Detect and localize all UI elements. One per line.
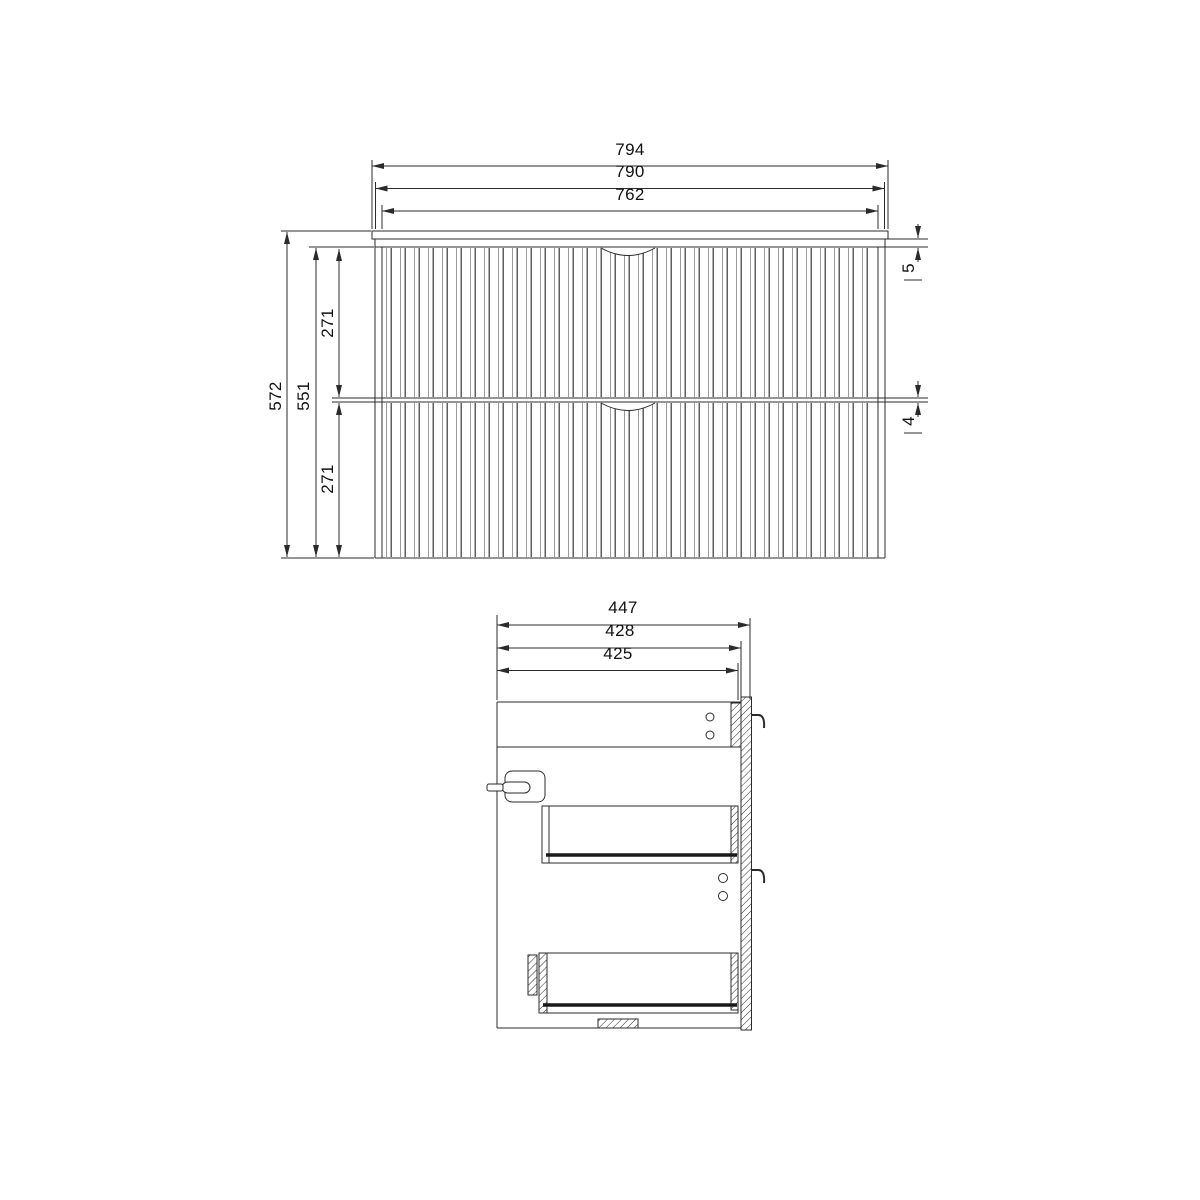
- front-dim-lower-drawer-label: 271: [318, 464, 338, 494]
- side-dim-carcass-depth-label: 428: [605, 621, 635, 641]
- side-bottom-rail-section: [598, 1019, 638, 1028]
- front-dim-drawer-width-label: 762: [615, 185, 645, 205]
- technical-drawing-canvas: 794 790 762 572 551 271 271 5 4 447 428 …: [0, 0, 1200, 1200]
- front-cabinet-body: [375, 239, 885, 558]
- side-wall-panel-section: [741, 697, 752, 1030]
- screw-hole-mid-1: [719, 874, 728, 883]
- side-dim-drawer-depth-label: 425: [603, 644, 633, 664]
- front-dim-overall-height-label: 572: [266, 381, 286, 411]
- screw-hole-mid-2: [719, 892, 728, 901]
- front-dim-overall-width-label: 794: [615, 140, 645, 160]
- front-view: [281, 160, 928, 558]
- front-dimensions-gaps: [885, 224, 928, 433]
- side-upper-drawer-box: [542, 806, 738, 863]
- wall-bracket-hook-top: [752, 715, 765, 728]
- side-dim-overall-depth-label: 447: [608, 598, 638, 618]
- side-view: [487, 615, 764, 1030]
- wall-bracket-hook-middle: [752, 870, 765, 883]
- side-lower-drawer-box: [528, 953, 738, 1013]
- drawing-linework: [0, 0, 1200, 1200]
- front-handle-recess-upper: [601, 248, 655, 256]
- front-dim-middle-gap-label: 4: [899, 416, 919, 426]
- front-dim-carcass-width-label: 790: [615, 162, 645, 182]
- side-top-rail-section: [731, 703, 741, 747]
- screw-hole-top-1: [706, 713, 714, 721]
- drawer-front-adjuster: [487, 771, 545, 802]
- front-dim-upper-drawer-label: 271: [318, 308, 338, 338]
- screw-hole-top-2: [706, 731, 714, 739]
- front-countertop-slab: [372, 231, 888, 239]
- front-dim-carcass-height-label: 551: [294, 381, 314, 411]
- front-dim-top-reveal-label: 5: [899, 263, 919, 273]
- front-handle-recess-lower: [601, 403, 655, 411]
